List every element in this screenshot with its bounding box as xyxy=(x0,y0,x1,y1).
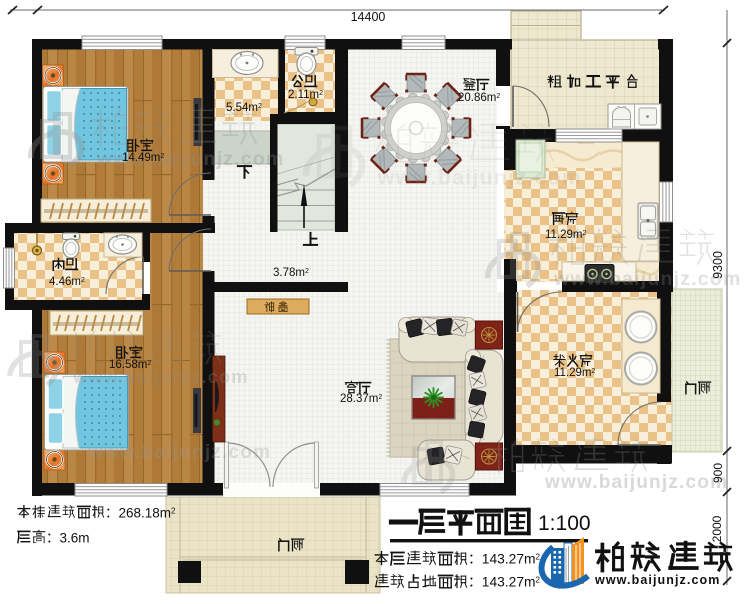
svg-text:14.49m2: 14.49m2 xyxy=(122,152,164,164)
svg-text:3.78m2: 3.78m2 xyxy=(273,267,309,279)
svg-text:5.54m2: 5.54m2 xyxy=(226,102,262,114)
svg-text:www.baijunjz.com: www.baijunjz.com xyxy=(377,166,582,190)
svg-text:www.baijunjz.com: www.baijunjz.com xyxy=(72,367,249,387)
svg-text:www.baijunjz.com: www.baijunjz.com xyxy=(87,442,271,463)
svg-text:2000: 2000 xyxy=(710,515,724,542)
svg-text:11.29m2: 11.29m2 xyxy=(554,367,596,379)
svg-text:www.baijunjz.com: www.baijunjz.com xyxy=(594,573,720,587)
svg-text:：3.6m: ：3.6m xyxy=(46,531,90,546)
svg-text:16.58m2: 16.58m2 xyxy=(109,359,151,371)
svg-text:：143.27m2: ：143.27m2 xyxy=(468,575,541,590)
svg-text:2.11m2: 2.11m2 xyxy=(288,89,323,101)
svg-text:4.46m2: 4.46m2 xyxy=(49,276,85,288)
svg-text:www.baijunjz.com: www.baijunjz.com xyxy=(544,472,728,493)
svg-text:14400: 14400 xyxy=(351,10,386,24)
svg-text:9300: 9300 xyxy=(711,251,725,279)
svg-text:：143.27m2: ：143.27m2 xyxy=(468,552,541,567)
svg-text:900: 900 xyxy=(711,463,725,483)
svg-text:：268.18m2: ：268.18m2 xyxy=(105,506,176,521)
svg-text:28.37m2: 28.37m2 xyxy=(340,393,382,405)
svg-text:1:100: 1:100 xyxy=(538,512,591,535)
svg-text:20.86m2: 20.86m2 xyxy=(458,92,500,104)
svg-text:11.29m2: 11.29m2 xyxy=(545,229,587,241)
